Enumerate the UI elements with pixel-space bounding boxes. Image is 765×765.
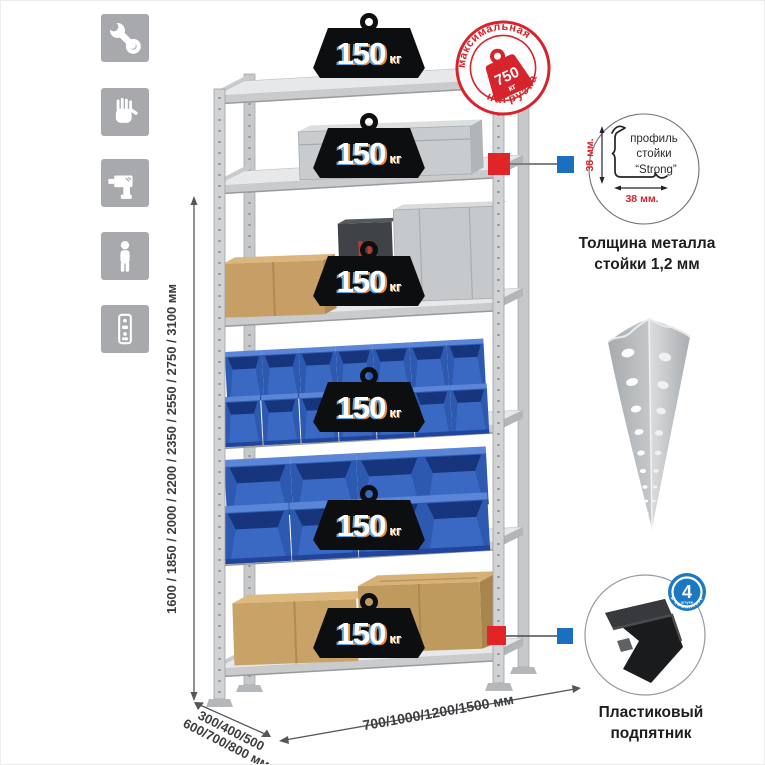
- foot-caption-line2: подпятник: [571, 724, 731, 745]
- width-dimension: 700/1000/1200/1500 мм: [279, 685, 581, 744]
- load-unit: кг: [389, 406, 401, 419]
- height-dimension: 1600 / 1850 / 2000 / 2200 / 2350 / 2550 …: [164, 196, 198, 701]
- person-icon: [101, 232, 149, 280]
- load-value: 150: [337, 510, 386, 541]
- load-value: 150: [337, 38, 386, 69]
- depth-dimension: 300/400/500 600/700/800 мм: [181, 702, 279, 765]
- blue-marker: [557, 156, 574, 173]
- shelf-load-badge: 150кг: [312, 485, 426, 550]
- load-unit: кг: [389, 280, 401, 293]
- profile-label-2: стойки: [636, 148, 671, 160]
- foot-caption-line1: Пластиковый: [571, 703, 731, 724]
- profile-cross-section: 38 мм. 38 мм. профиль стойки “Strong”: [584, 114, 699, 224]
- red-marker: [487, 626, 506, 645]
- profile-dim-horizontal: 38 мм.: [625, 193, 658, 205]
- product-infographic: 1600 / 1850 / 2000 / 2200 / 2350 / 2550 …: [0, 0, 765, 765]
- shelf-load-badge: 150кг: [312, 593, 426, 658]
- thickness-caption-line2: стойки 1,2 мм: [562, 255, 732, 276]
- foot-callout: [487, 626, 573, 645]
- included-count-badge: 4 штуки в комплекте: [668, 573, 706, 611]
- load-unit: кг: [389, 524, 401, 537]
- load-unit: кг: [389, 152, 401, 165]
- plastic-foot-detail: 4 штуки в комплекте: [585, 573, 706, 695]
- thickness-caption: Толщина металла стойки 1,2 мм: [562, 234, 732, 276]
- foot-caption: Пластиковый подпятник: [571, 703, 731, 745]
- load-value: 150: [337, 138, 386, 169]
- load-unit: кг: [389, 52, 401, 65]
- blue-marker: [557, 628, 573, 644]
- corner-post-image: [608, 319, 690, 529]
- load-value: 150: [337, 618, 386, 649]
- width-dimension-label: 700/1000/1200/1500 мм: [361, 691, 515, 733]
- shelf-load-badge: 150кг: [312, 241, 426, 306]
- thickness-caption-line1: Толщина металла: [562, 234, 732, 255]
- profile-label-1: профиль: [630, 133, 678, 145]
- red-marker: [488, 153, 510, 175]
- profile-callout: [488, 153, 574, 175]
- load-unit: кг: [389, 632, 401, 645]
- load-value: 150: [337, 392, 386, 423]
- max-load-stamp: максимальная нагрузка 750 кг: [441, 6, 564, 129]
- shelf-load-badge: 150кг: [312, 367, 426, 432]
- wrench-icon: [101, 14, 149, 62]
- profile-dim-vertical: 38 мм.: [584, 138, 596, 171]
- drill-icon: [101, 159, 149, 207]
- shelf-load-badge: 150кг: [312, 13, 426, 78]
- profile-label-3: “Strong”: [635, 164, 677, 176]
- height-dimension-label: 1600 / 1850 / 2000 / 2200 / 2350 / 2550 …: [164, 284, 179, 614]
- shelf-load-badge: 150кг: [312, 113, 426, 178]
- rack-post-icon: [101, 305, 149, 353]
- gloves-icon: [101, 88, 149, 136]
- load-value: 150: [337, 266, 386, 297]
